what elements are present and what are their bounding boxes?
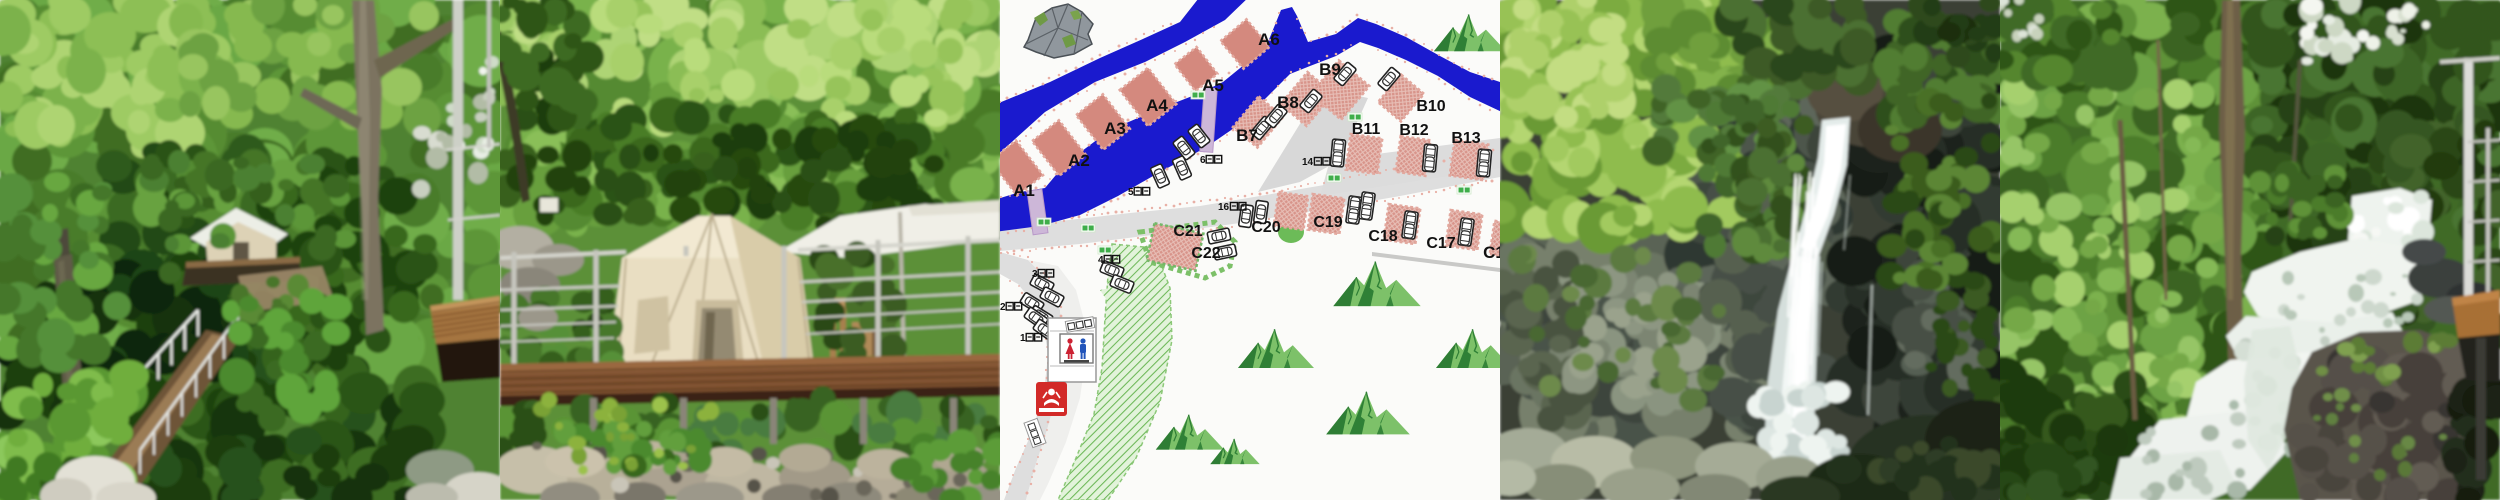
svg-text:3: 3 [1032, 269, 1038, 280]
svg-text:B11: B11 [1352, 121, 1381, 138]
svg-text:B10: B10 [1416, 98, 1445, 115]
svg-text:A4: A4 [1146, 96, 1168, 115]
svg-text:16: 16 [1218, 202, 1230, 213]
svg-text:B8: B8 [1277, 93, 1299, 112]
svg-text:C17: C17 [1426, 235, 1455, 252]
svg-text:5: 5 [1128, 187, 1134, 198]
svg-text:B13: B13 [1451, 130, 1480, 147]
svg-text:C18: C18 [1368, 228, 1397, 245]
svg-text:B7: B7 [1236, 126, 1258, 145]
svg-text:2: 2 [1000, 302, 1006, 313]
svg-text:A1: A1 [1013, 181, 1035, 200]
svg-text:B9: B9 [1319, 60, 1341, 79]
svg-text:6: 6 [1200, 155, 1206, 166]
svg-text:14: 14 [1302, 157, 1314, 168]
svg-text:C22: C22 [1191, 245, 1220, 262]
svg-text:A2: A2 [1068, 151, 1090, 170]
svg-text:A6: A6 [1258, 30, 1280, 49]
svg-text:C21: C21 [1173, 223, 1202, 240]
svg-text:B12: B12 [1399, 122, 1428, 139]
svg-text:4: 4 [1098, 255, 1104, 266]
svg-text:A3: A3 [1104, 119, 1126, 138]
svg-text:C19: C19 [1313, 214, 1342, 231]
svg-text:C20: C20 [1251, 219, 1280, 236]
svg-text:1: 1 [1020, 333, 1026, 344]
